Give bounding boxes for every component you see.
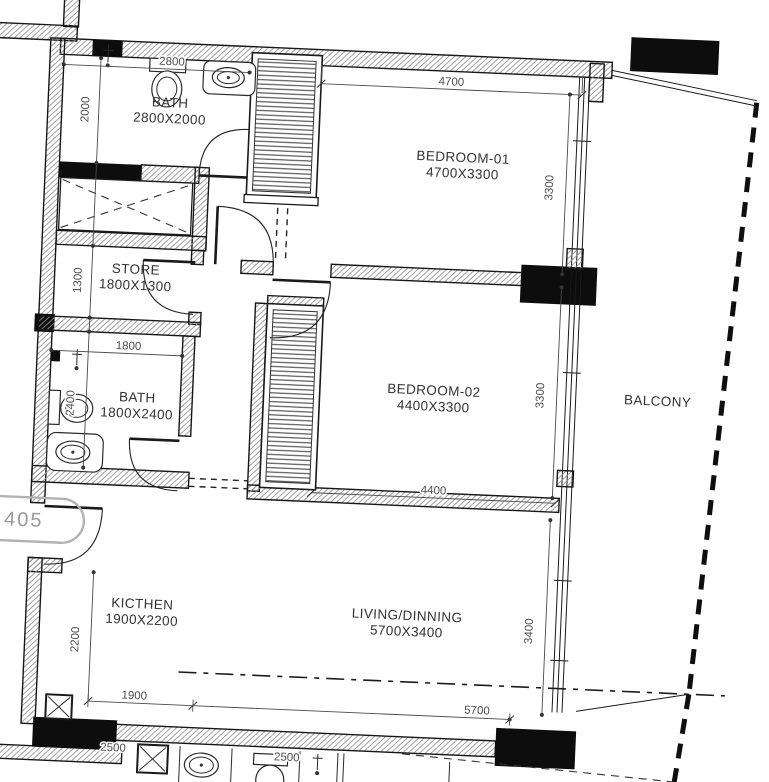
floor-plan-drawing: 2800 2000 4700 3300 1300 1800 2400 4400 … [0,0,769,782]
dim-living-w: 5700 [464,705,490,718]
room-label-store: STORE [111,261,160,278]
dim-bed1-w: 4700 [438,76,464,89]
room-size-bath-top: 2800X2000 [133,110,206,128]
room-label-kitchen: KICTHEN [111,595,174,613]
door-arc-bedroom-01 [215,206,275,266]
dim-bath-mid-h: 2400 [64,390,77,416]
dim-bed2-w: 4400 [420,484,446,497]
dim-below-a: 2500 [100,742,126,755]
unit-number: 405 [4,508,44,532]
balcony-rail-dashed [689,101,757,696]
shower-icon [312,754,323,770]
dim-store-h: 1300 [72,267,85,293]
room-label-bath-mid: BATH [119,389,156,406]
window-wall [547,77,594,713]
column-bottom-right [495,728,577,769]
bulkhead-dashes [275,208,287,260]
dim-bed1-h: 3300 [543,175,556,201]
room-label-balcony: BALCONY [624,392,692,410]
shaft-box-bottom-left [45,694,72,719]
column-bedroom-divider [520,265,598,306]
room-size-store: 1800X1300 [99,276,172,294]
dim-bath-top-h: 2000 [79,96,92,122]
room-size-bedroom-01: 4700X3300 [426,164,499,182]
room-size-living: 5700X3400 [370,622,443,640]
duct-shaft [59,177,193,235]
toilet-tank [48,390,60,424]
room-size-bedroom-02: 4400X3300 [397,397,470,415]
center-line [178,672,724,696]
dim-bed2-h: 3300 [534,382,547,408]
bath-mid-fixtures [46,348,107,472]
toilet-bowl [255,764,284,782]
bulkhead-dashes-2 [188,478,247,489]
rotated-plan: 2800 2000 4700 3300 1300 1800 2400 4400 … [0,0,762,782]
dim-bath-mid-w: 1800 [115,340,141,353]
dim-kitchen-w: 1900 [121,690,147,703]
room-size-kitchen: 1900X2200 [105,611,178,629]
dim-kitchen-h: 2200 [69,626,82,652]
door-arc-entry [44,506,102,566]
room-size-bath-mid: 1800X2400 [100,404,173,422]
outer-walls [0,0,722,782]
dim-bath-top-w: 2800 [159,56,185,69]
dim-living-h: 3400 [523,618,536,644]
wall-fill-top [92,40,123,57]
dim-below-b: 2500 [274,751,300,764]
room-label-living: LIVING/DINNING [351,606,462,626]
room-label-bath-top: BATH [152,94,189,111]
column-top-right [630,37,719,75]
